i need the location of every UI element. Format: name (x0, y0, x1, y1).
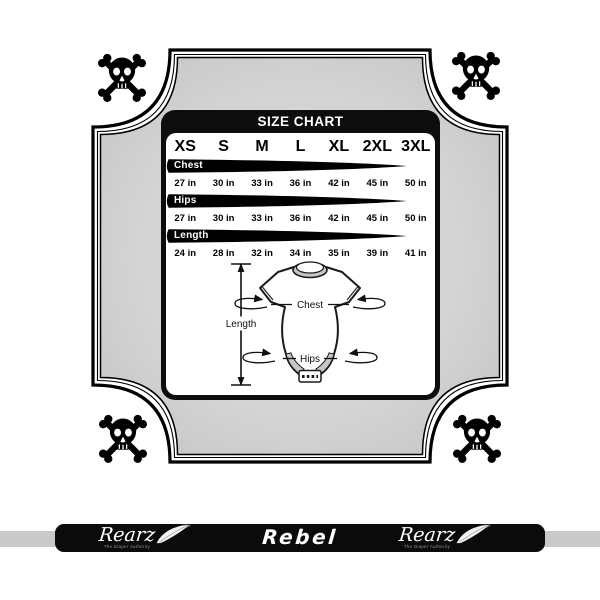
measurement-value: 42 in (320, 213, 358, 224)
chest-label: Chest (297, 300, 323, 311)
measurement-row-label: Hips (174, 194, 196, 208)
size-column-header: 3XL (397, 138, 435, 156)
banner-blade-shape (166, 194, 435, 208)
measurement-row-label: Chest (174, 159, 203, 173)
onesie-diagram: Length Chest Hips (205, 255, 405, 395)
measurement-value: 50 in (397, 178, 435, 189)
footer-banner: Rearz The Diaper Authority Rebel Rearz T… (55, 524, 545, 552)
skull-crossbones-icon (450, 50, 502, 102)
size-column-header: XL (320, 138, 358, 156)
feather-icon (455, 523, 493, 545)
size-chart-title: SIZE CHART (161, 110, 440, 133)
measurement-values-row: 27 in 30 in 33 in 36 in 42 in 45 in 50 i… (166, 173, 435, 193)
measurement-value: 33 in (243, 213, 281, 224)
measurement-value: 30 in (204, 178, 242, 189)
measurement-values-row: 27 in 30 in 33 in 36 in 42 in 45 in 50 i… (166, 208, 435, 228)
measurement-value: 30 in (204, 213, 242, 224)
measurement-value: 24 in (166, 248, 204, 259)
measurement-row-banner: Length (166, 229, 435, 243)
measurement-value: 45 in (358, 213, 396, 224)
measurement-row-banner: Hips (166, 194, 435, 208)
size-column-header: 2XL (358, 138, 396, 156)
measurement-value: 42 in (320, 178, 358, 189)
measurement-value: 36 in (281, 213, 319, 224)
measurement-value: 36 in (281, 178, 319, 189)
length-label: Length (226, 319, 257, 330)
measurement-value: 27 in (166, 213, 204, 224)
measurement-value: 33 in (243, 178, 281, 189)
rearz-wordmark: Rearz (398, 527, 456, 543)
product-name: Rebel (261, 525, 338, 549)
skull-crossbones-icon (96, 52, 148, 104)
brand-logo-left: Rearz The Diaper Authority (99, 524, 193, 552)
measurement-value: 50 in (397, 213, 435, 224)
brand-logo-right: Rearz The Diaper Authority (399, 524, 493, 552)
measurement-value: 27 in (166, 178, 204, 189)
banner-blade-shape (166, 159, 435, 173)
size-column-header: XS (166, 138, 204, 156)
size-column-header: S (204, 138, 242, 156)
rearz-wordmark: Rearz (98, 527, 156, 543)
measurement-row-label: Length (174, 229, 209, 243)
product-image: SIZE CHART XS S M L XL 2XL 3XL Chest 27 … (0, 0, 600, 600)
size-column-header: L (281, 138, 319, 156)
size-column-header: M (243, 138, 281, 156)
skull-crossbones-icon (451, 413, 503, 465)
hips-label: Hips (300, 354, 320, 365)
measurement-row-banner: Chest (166, 159, 435, 173)
measurement-value: 45 in (358, 178, 396, 189)
skull-crossbones-icon (97, 413, 149, 465)
feather-icon (155, 523, 193, 545)
size-header-row: XS S M L XL 2XL 3XL (166, 136, 435, 158)
